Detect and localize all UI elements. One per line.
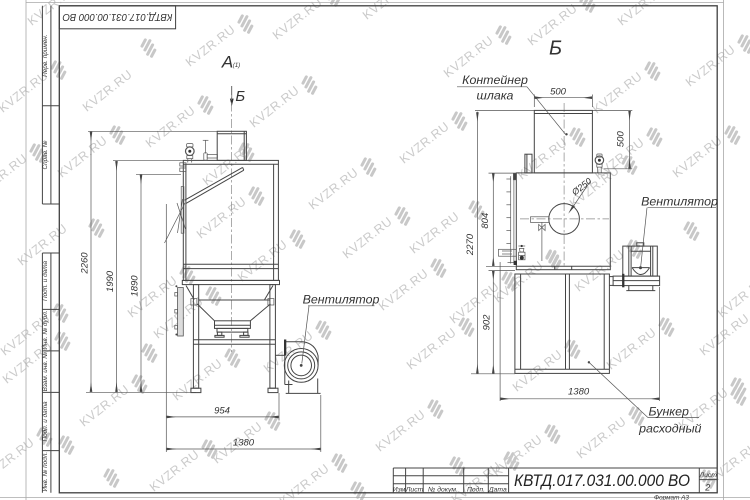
svg-text:2270: 2270 (465, 233, 476, 256)
svg-text:Справ. №: Справ. № (42, 140, 49, 169)
svg-text:КВТД.017.031.00.000 ВО: КВТД.017.031.00.000 ВО (63, 11, 173, 22)
svg-text:Инв. № дубл.: Инв. № дубл. (41, 310, 49, 349)
svg-text:расходный: расходный (638, 422, 701, 436)
svg-text:2: 2 (704, 483, 710, 493)
svg-text:Подп. и дата: Подп. и дата (41, 261, 49, 301)
svg-text:шлака: шлака (477, 88, 514, 102)
svg-text:Вентилятор: Вентилятор (641, 194, 718, 208)
svg-text:№ докум.: № докум. (428, 486, 458, 494)
svg-text:Перв. примен.: Перв. примен. (42, 34, 49, 76)
svg-text:Контейнер: Контейнер (462, 73, 528, 87)
svg-text:954: 954 (214, 405, 230, 416)
svg-text:Б: Б (235, 88, 245, 105)
svg-text:Вентилятор: Вентилятор (303, 292, 380, 306)
svg-text:902: 902 (482, 314, 493, 331)
svg-text:1380: 1380 (568, 386, 590, 397)
svg-text:2260: 2260 (80, 252, 91, 275)
svg-text:КВТД.017.031.00.000 ВО: КВТД.017.031.00.000 ВО (514, 471, 690, 490)
svg-text:Подп.: Подп. (467, 486, 485, 494)
svg-text:(1): (1) (233, 63, 240, 69)
svg-text:Б: Б (549, 37, 562, 59)
svg-text:А: А (221, 52, 233, 71)
svg-text:Формат А3: Формат А3 (654, 495, 689, 500)
svg-text:Взам. инв. №: Взам. инв. № (42, 352, 49, 392)
svg-text:Дата: Дата (488, 487, 507, 494)
svg-text:1990: 1990 (105, 270, 116, 292)
svg-text:Подп. и дата: Подп. и дата (41, 401, 49, 441)
svg-text:500: 500 (616, 131, 627, 148)
svg-text:Бункер: Бункер (648, 405, 689, 419)
svg-text:Инв. № подл.: Инв. № подл. (41, 452, 49, 492)
svg-text:Лист: Лист (405, 487, 424, 494)
svg-text:500: 500 (550, 87, 567, 98)
svg-text:1380: 1380 (233, 438, 255, 449)
svg-text:1890: 1890 (129, 275, 140, 297)
svg-text:804: 804 (480, 213, 491, 229)
svg-text:Лист: Лист (698, 472, 717, 479)
